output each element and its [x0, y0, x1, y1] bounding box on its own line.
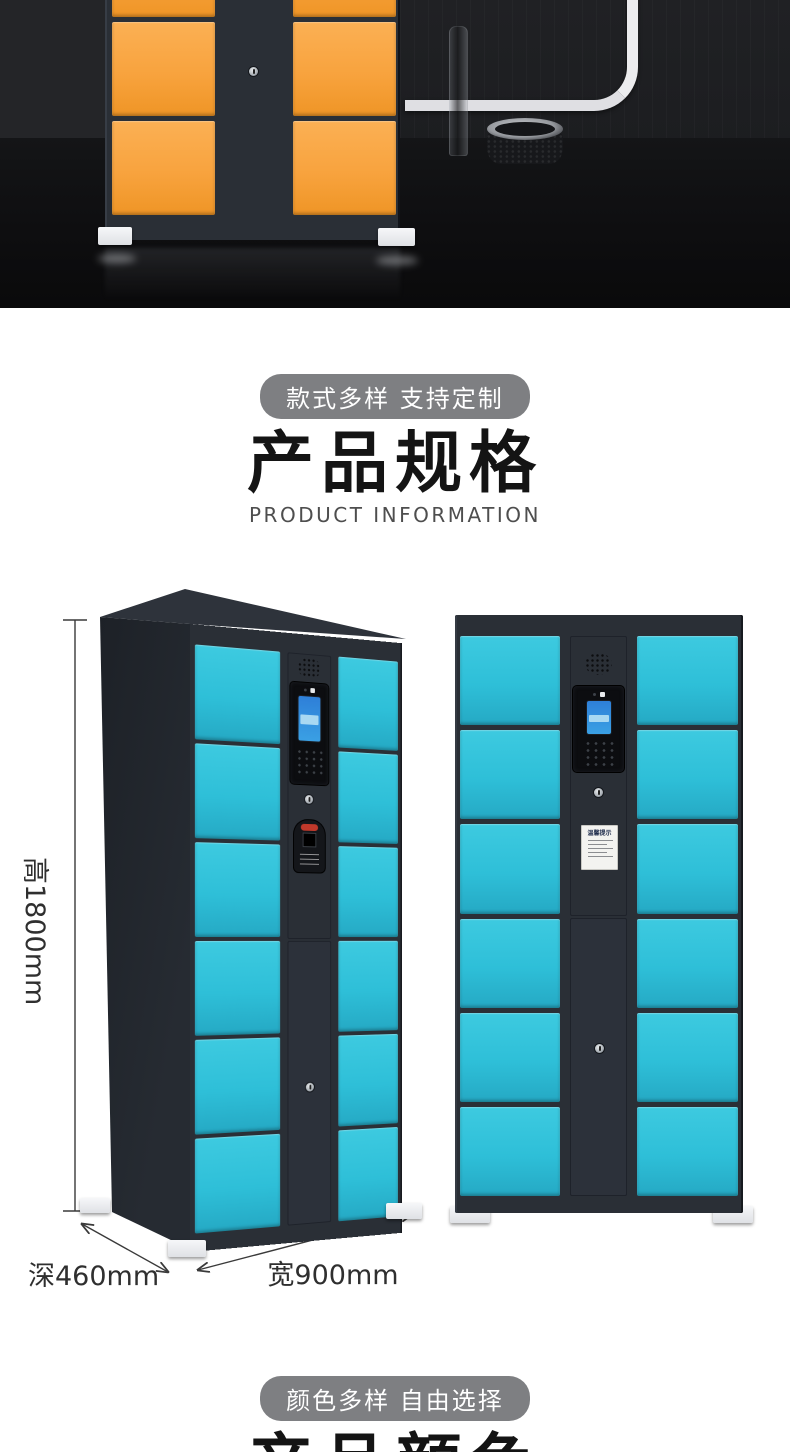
locker-door: [338, 657, 398, 751]
scanner-label: [301, 824, 318, 831]
keyhole-icon: [594, 788, 603, 797]
locker-door: [460, 636, 560, 725]
locker-door: [338, 751, 398, 844]
sticker-title: 温馨提示: [582, 828, 617, 837]
locker-door: [460, 824, 560, 913]
keyhole-icon: [305, 795, 313, 804]
specs-header: 款式多样 支持定制 产品规格 PRODUCT INFORMATION: [0, 374, 790, 527]
floor-reflection: [98, 254, 136, 263]
locker-door: [460, 1013, 560, 1102]
qr-scanner-icon: [294, 820, 325, 873]
indicator-light: [600, 692, 605, 697]
locker-door-column: [338, 657, 398, 1222]
keypad-icon: [584, 740, 615, 766]
locker-door: [637, 730, 738, 819]
control-panel: [573, 686, 624, 772]
specs-badge: 款式多样 支持定制: [260, 374, 530, 419]
dim-height-label: 高1800mm: [29, 857, 57, 975]
locker-door: [637, 1107, 738, 1196]
locker-foot: [168, 1240, 206, 1257]
locker-door: [637, 1013, 738, 1102]
locker-foot: [378, 228, 415, 246]
touch-screen: [587, 701, 611, 734]
locker-door: [195, 941, 280, 1036]
specs-subtitle: PRODUCT INFORMATION: [249, 503, 541, 527]
locker-center-column: 温馨提示: [570, 636, 627, 1196]
locker-door-column: [460, 636, 560, 1196]
control-panel: [290, 682, 328, 786]
touch-screen: [299, 696, 321, 742]
locker-center-column: [225, 0, 283, 215]
colors-title: 产品颜色: [247, 1430, 543, 1452]
notice-sticker: 温馨提示: [581, 825, 618, 870]
locker-door: [112, 22, 215, 116]
locker-door: [112, 121, 215, 215]
keyhole-icon: [306, 1083, 314, 1092]
colors-header: 颜色多样 自由选择 产品颜色: [0, 1376, 790, 1452]
dim-width-label: 宽900mm: [258, 1253, 408, 1292]
glass-vase: [449, 26, 468, 156]
locker-door: [195, 842, 280, 937]
keypad-icon: [296, 748, 324, 777]
locker-foot: [98, 227, 132, 245]
locker-center-door: [288, 941, 332, 1226]
locker-door: [195, 1134, 280, 1234]
locker-door: [338, 846, 398, 937]
locker-door: [195, 743, 280, 840]
product-detail-page: 款式多样 支持定制 产品规格 PRODUCT INFORMATION 高1800…: [0, 0, 790, 1452]
locker-door-column: [112, 0, 215, 215]
locker-door: [460, 919, 560, 1008]
locker-foot: [80, 1198, 110, 1213]
white-pipe-rail: [405, 0, 638, 111]
locker-3q-side-face: [100, 617, 198, 1262]
woven-basket: [487, 118, 563, 164]
locker-door: [112, 0, 215, 17]
keyhole-icon: [595, 1044, 604, 1053]
locker-3q-front-face: [190, 624, 402, 1252]
floor-reflection: [376, 256, 418, 265]
locker-door-column: [195, 644, 280, 1233]
locker-door: [293, 22, 396, 116]
hero-photo-section: [0, 0, 790, 308]
locker-door-column: [293, 0, 396, 215]
locker-door: [338, 1034, 398, 1127]
locker-door: [460, 1107, 560, 1196]
camera-icon: [304, 688, 307, 691]
locker-door: [195, 644, 280, 744]
locker-door: [338, 941, 398, 1032]
locker-center-column: [288, 652, 332, 1225]
camera-icon: [593, 693, 596, 696]
locker-door: [293, 0, 396, 17]
keyhole-icon: [249, 67, 258, 76]
dim-depth-label: 深460mm: [28, 1254, 159, 1293]
locker-door: [637, 636, 738, 725]
locker-foot: [386, 1203, 422, 1219]
floor-reflection: [105, 248, 400, 306]
speaker-grille-icon: [585, 653, 612, 675]
hero-wall-left-panel: [0, 0, 105, 140]
orange-locker-cabinet: [105, 0, 400, 240]
locker-door-column: [637, 636, 738, 1196]
specs-title: 产品规格: [247, 428, 543, 498]
locker-door: [293, 121, 396, 215]
blue-locker-front-view: 温馨提示: [455, 615, 743, 1213]
locker-door: [637, 824, 738, 913]
colors-badge: 颜色多样 自由选择: [260, 1376, 530, 1421]
locker-door: [195, 1037, 280, 1134]
locker-door: [460, 730, 560, 819]
indicator-light: [310, 688, 315, 693]
locker-center-door: [570, 918, 627, 1196]
locker-door: [637, 919, 738, 1008]
